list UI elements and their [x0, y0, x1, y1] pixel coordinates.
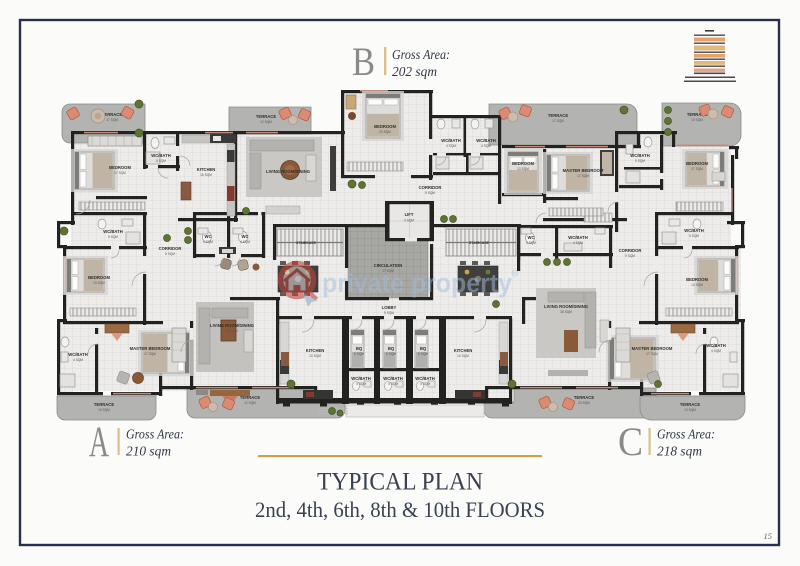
svg-text:TERRACE: TERRACE — [574, 395, 594, 400]
svg-text:LOBBY: LOBBY — [382, 305, 397, 310]
svg-text:4 SQM: 4 SQM — [73, 358, 83, 362]
svg-text:12 SQM: 12 SQM — [260, 120, 272, 124]
svg-text:4 SQM: 4 SQM — [240, 240, 250, 244]
svg-text:20 SQM: 20 SQM — [379, 130, 391, 134]
svg-text:9 SQM: 9 SQM — [625, 254, 635, 258]
svg-text:WC/BATH: WC/BATH — [68, 352, 87, 357]
svg-text:KITCHEN: KITCHEN — [306, 348, 325, 353]
svg-text:BEDROOM: BEDROOM — [512, 161, 534, 166]
svg-text:10 SQM: 10 SQM — [691, 118, 703, 122]
svg-text:R: R — [513, 271, 518, 277]
svg-text:STAIRCASE: STAIRCASE — [469, 241, 490, 245]
svg-text:12 SQM: 12 SQM — [244, 401, 256, 405]
svg-text:16 SQM: 16 SQM — [200, 173, 212, 177]
svg-text:WC/BATH: WC/BATH — [103, 229, 122, 234]
svg-text:LIVING ROOM/DINING: LIVING ROOM/DINING — [266, 169, 310, 174]
svg-text:4 SQM: 4 SQM — [481, 144, 491, 148]
svg-text:17 SQM: 17 SQM — [114, 171, 126, 175]
svg-text:4 SQM: 4 SQM — [404, 219, 414, 223]
svg-text:BQ: BQ — [356, 346, 363, 351]
svg-text:MASTER BEDROOM: MASTER BEDROOM — [563, 168, 604, 173]
svg-text:WC/BATH: WC/BATH — [351, 376, 370, 381]
svg-text:5 SQM: 5 SQM — [108, 235, 118, 239]
svg-text:A: A — [89, 419, 109, 466]
svg-text:13 SQM: 13 SQM — [93, 281, 105, 285]
svg-text:WC/BATH: WC/BATH — [684, 228, 703, 233]
svg-text:WC/BATH: WC/BATH — [441, 138, 460, 143]
svg-text:KITCHEN: KITCHEN — [454, 348, 473, 353]
svg-text:17 SQM: 17 SQM — [646, 352, 658, 356]
svg-text:WC/BATH: WC/BATH — [476, 138, 495, 143]
svg-text:MASTER BEDROOM: MASTER BEDROOM — [130, 346, 171, 351]
svg-text:Gross Area:: Gross Area: — [126, 427, 184, 442]
svg-text:LIVING ROOM/DINING: LIVING ROOM/DINING — [210, 323, 254, 328]
svg-text:5 SQM: 5 SQM — [418, 352, 428, 356]
svg-text:210 sqm: 210 sqm — [126, 444, 171, 459]
svg-text:5 SQM: 5 SQM — [156, 159, 166, 163]
svg-text:3 SQM: 3 SQM — [388, 382, 398, 386]
svg-text:10 SQM: 10 SQM — [98, 408, 110, 412]
svg-text:2nd, 4th, 6th, 8th & 10th FLOO: 2nd, 4th, 6th, 8th & 10th FLOORS — [255, 497, 545, 522]
svg-text:TYPICAL PLAN: TYPICAL PLAN — [317, 467, 483, 496]
svg-text:WC/BATH: WC/BATH — [151, 153, 170, 158]
svg-text:WC/BATH: WC/BATH — [415, 376, 434, 381]
svg-text:5 SQM: 5 SQM — [689, 234, 699, 238]
svg-text:5 SQM: 5 SQM — [386, 352, 396, 356]
svg-text:17 SQM: 17 SQM — [691, 167, 703, 171]
svg-text:218 sqm: 218 sqm — [657, 444, 702, 459]
svg-text:CORRIDOR: CORRIDOR — [419, 185, 442, 190]
svg-text:TERRACE: TERRACE — [548, 113, 568, 118]
svg-text:WC/BATH: WC/BATH — [383, 376, 402, 381]
svg-text:Gross Area:: Gross Area: — [392, 47, 450, 62]
svg-text:WC/BATH: WC/BATH — [630, 153, 649, 158]
svg-text:4 SQM: 4 SQM — [203, 240, 213, 244]
svg-text:C: C — [618, 419, 643, 464]
svg-text:4 SQM: 4 SQM — [711, 349, 721, 353]
svg-text:BEDROOM: BEDROOM — [686, 161, 708, 166]
svg-text:TERRACE: TERRACE — [680, 402, 700, 407]
svg-text:WC/BATH: WC/BATH — [706, 343, 725, 348]
svg-text:KITCHEN: KITCHEN — [197, 167, 216, 172]
svg-text:CORRIDOR: CORRIDOR — [159, 246, 182, 251]
svg-text:5 SQM: 5 SQM — [354, 352, 364, 356]
svg-text:STAIRCASE: STAIRCASE — [296, 241, 317, 245]
svg-text:38 SQM: 38 SQM — [560, 310, 572, 314]
svg-text:MASTER BEDROOM: MASTER BEDROOM — [632, 346, 673, 351]
svg-text:15: 15 — [764, 531, 773, 541]
svg-text:Gross Area:: Gross Area: — [657, 427, 715, 442]
svg-text:BEDROOM: BEDROOM — [109, 165, 131, 170]
svg-text:202 sqm: 202 sqm — [392, 64, 437, 79]
svg-text:10 SQM: 10 SQM — [309, 354, 321, 358]
svg-text:3 SQM: 3 SQM — [356, 382, 366, 386]
svg-text:TERRACE: TERRACE — [256, 114, 276, 119]
svg-text:5 SQM: 5 SQM — [635, 159, 645, 163]
svg-text:BQ: BQ — [388, 346, 395, 351]
svg-text:4 SQM: 4 SQM — [446, 144, 456, 148]
svg-text:13 SQM: 13 SQM — [691, 283, 703, 287]
svg-text:BEDROOM: BEDROOM — [374, 124, 396, 129]
svg-text:17 SQM: 17 SQM — [577, 174, 589, 178]
svg-text:10 SQM: 10 SQM — [457, 354, 469, 358]
svg-text:LIVING ROOM/DINING: LIVING ROOM/DINING — [544, 304, 588, 309]
svg-text:4 SQM: 4 SQM — [573, 241, 583, 245]
svg-text:10 SQM: 10 SQM — [684, 408, 696, 412]
svg-text:LIFT: LIFT — [405, 212, 414, 217]
svg-text:TERRACE: TERRACE — [94, 402, 114, 407]
svg-text:3 SQM: 3 SQM — [420, 382, 430, 386]
svg-text:17 SQM: 17 SQM — [144, 352, 156, 356]
svg-text:17 SQM: 17 SQM — [106, 118, 118, 122]
svg-text:23 SQM: 23 SQM — [578, 401, 590, 405]
svg-text:BEDROOM: BEDROOM — [88, 275, 110, 280]
svg-text:8 SQM: 8 SQM — [165, 252, 175, 256]
svg-text:WC/BATH: WC/BATH — [568, 235, 587, 240]
svg-text:WC: WC — [205, 234, 212, 239]
svg-text:BEDROOM: BEDROOM — [686, 277, 708, 282]
svg-text:CIRCULATION: CIRCULATION — [374, 263, 403, 268]
svg-text:WC: WC — [528, 235, 535, 240]
svg-text:B: B — [352, 39, 375, 84]
svg-text:5 SQM: 5 SQM — [425, 191, 435, 195]
svg-text:CORRIDOR: CORRIDOR — [619, 248, 642, 253]
svg-text:3 SQM: 3 SQM — [526, 241, 536, 245]
svg-text:WC: WC — [242, 234, 249, 239]
svg-text:36 SQM: 36 SQM — [226, 329, 238, 333]
svg-text:private property: private property — [322, 270, 513, 298]
svg-text:13 SQM: 13 SQM — [517, 167, 529, 171]
svg-text:17 SQM: 17 SQM — [552, 119, 564, 123]
svg-text:9 SQM: 9 SQM — [384, 311, 394, 315]
svg-text:BQ: BQ — [420, 346, 427, 351]
svg-text:36 SQM: 36 SQM — [282, 175, 294, 179]
